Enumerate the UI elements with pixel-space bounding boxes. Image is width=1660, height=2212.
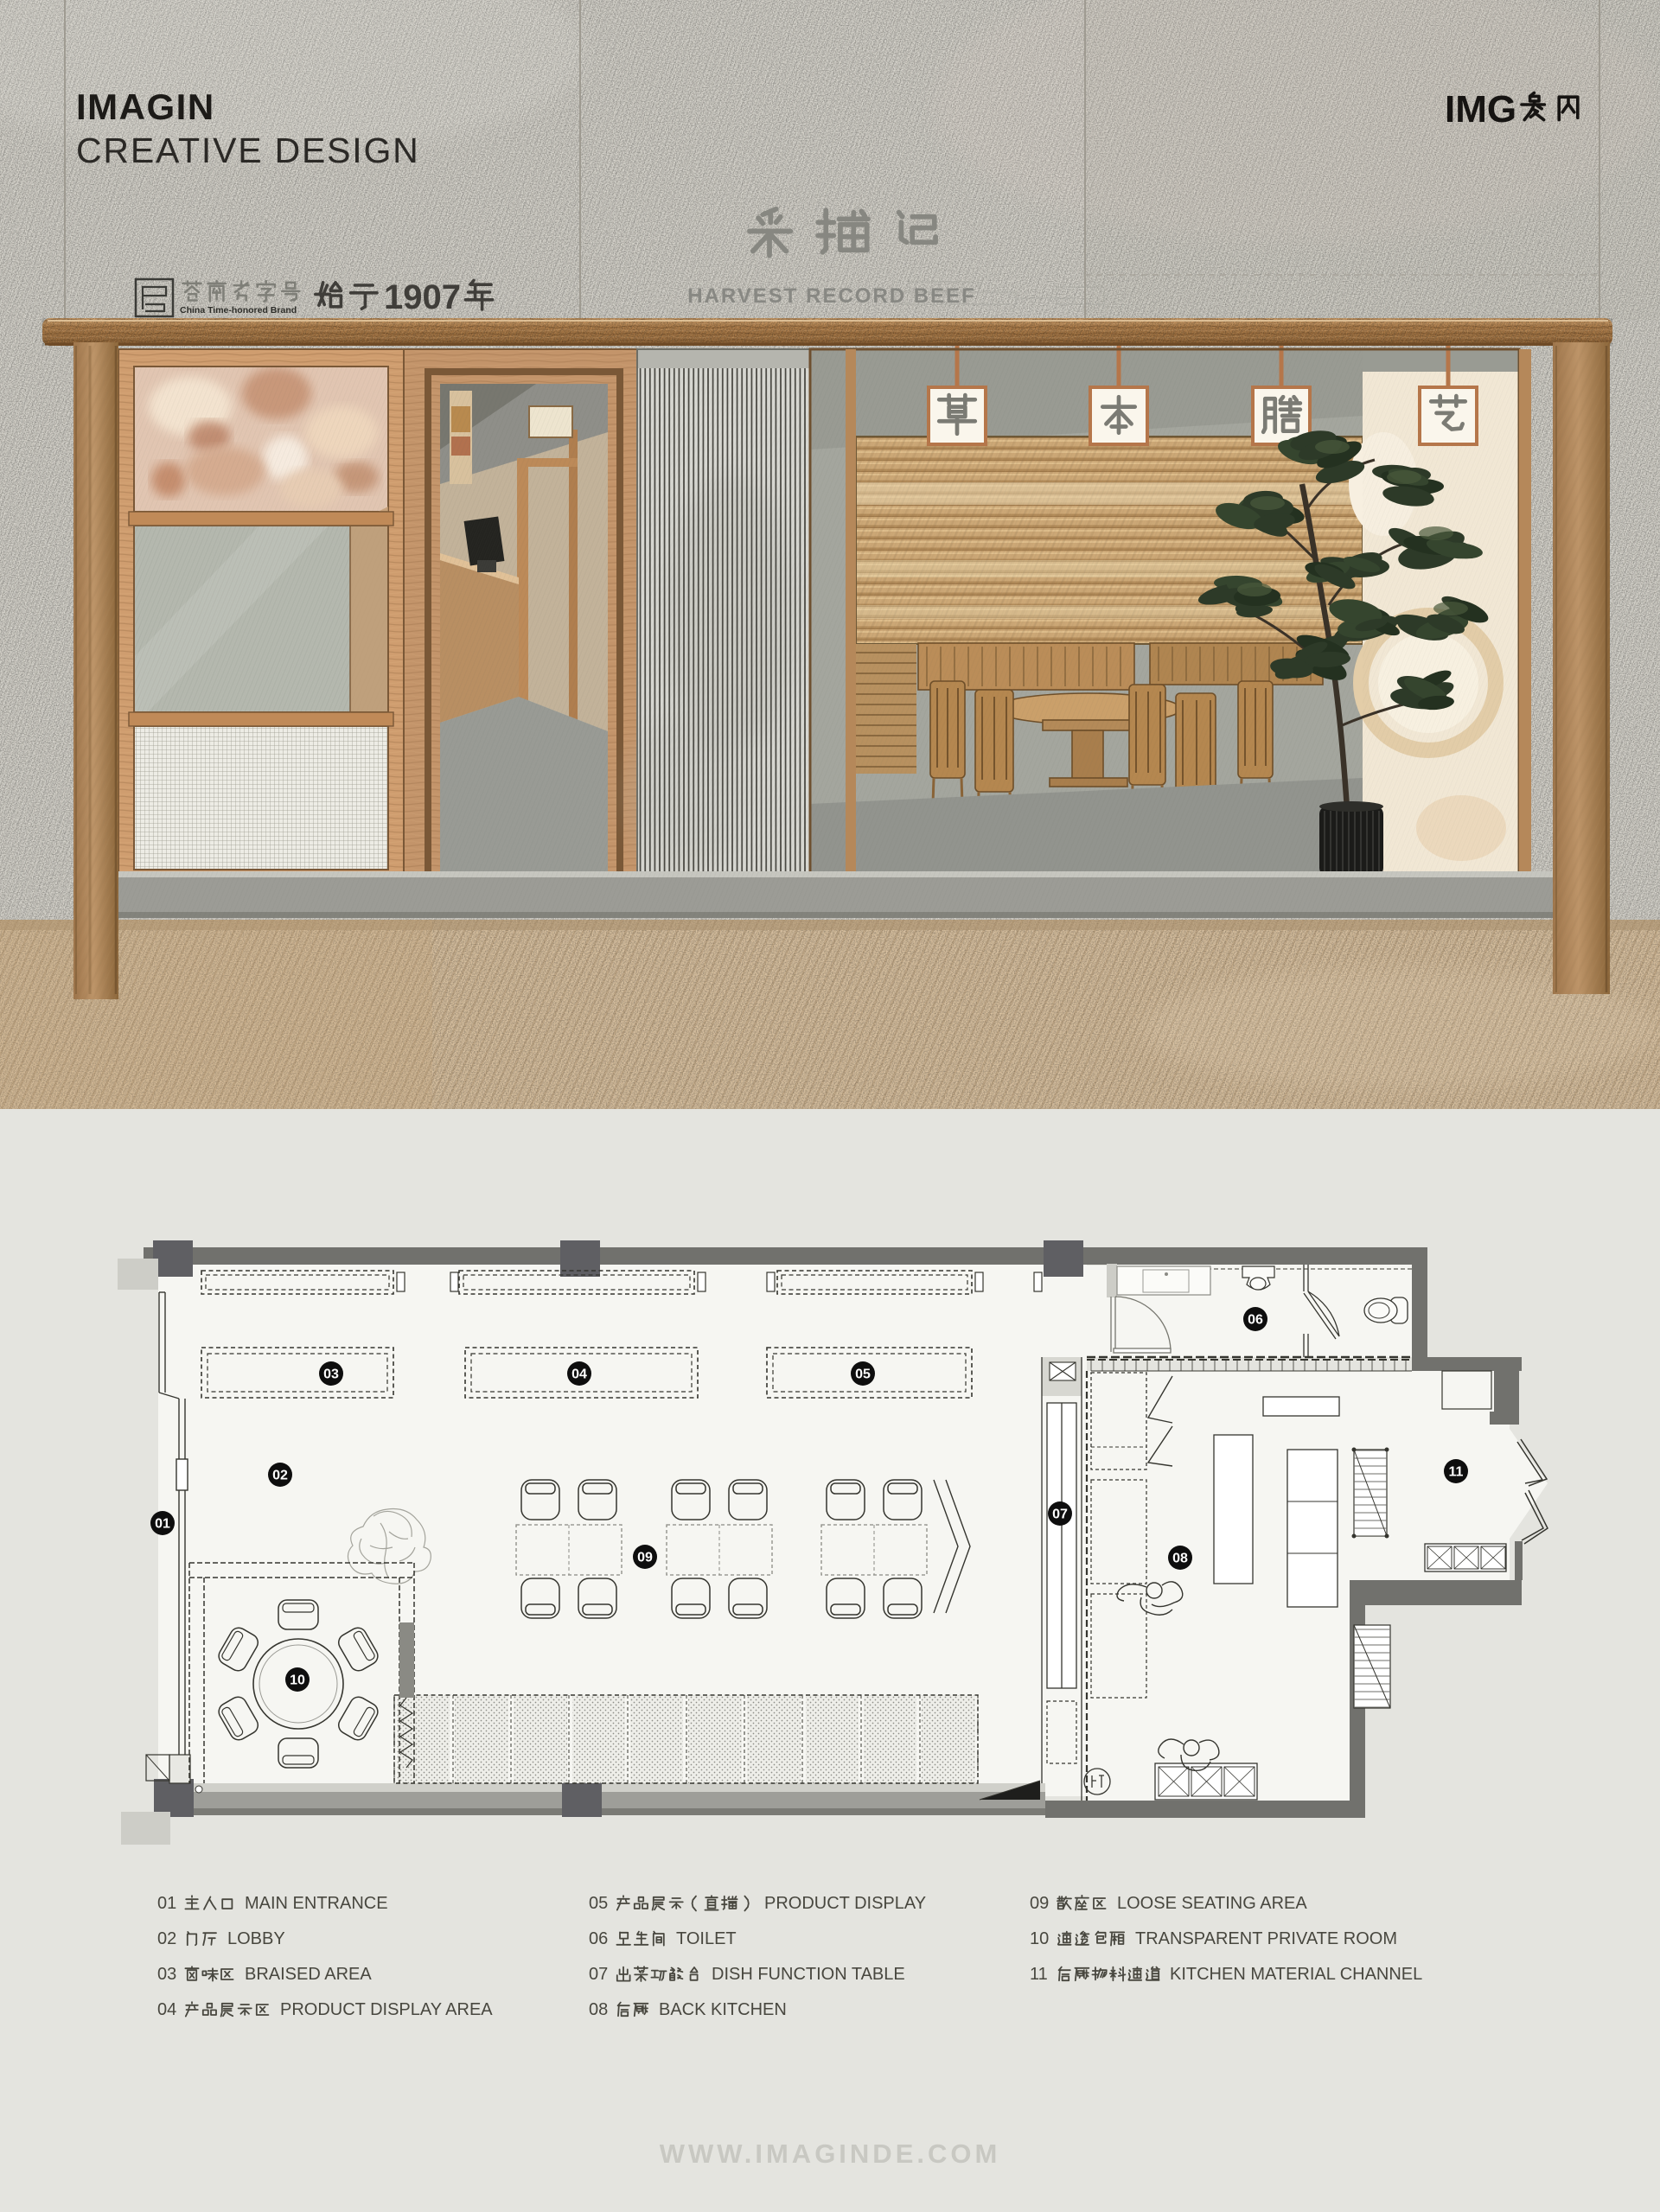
svg-text:01: 01 xyxy=(155,1517,170,1532)
svg-text:IMAGIN: IMAGIN xyxy=(76,86,215,127)
svg-text:06: 06 xyxy=(589,1929,608,1948)
svg-text:BACK KITCHEN: BACK KITCHEN xyxy=(659,2000,787,2019)
svg-text:WWW.IMAGINDE.COM: WWW.IMAGINDE.COM xyxy=(660,2139,1001,2169)
svg-text:CREATIVE DESIGN: CREATIVE DESIGN xyxy=(76,131,420,170)
svg-text:08: 08 xyxy=(1172,1552,1188,1566)
svg-text:06: 06 xyxy=(1248,1313,1263,1328)
svg-text:KITCHEN MATERIAL CHANNEL: KITCHEN MATERIAL CHANNEL xyxy=(1170,1965,1422,1984)
svg-text:03: 03 xyxy=(323,1367,339,1382)
svg-text:BRAISED AREA: BRAISED AREA xyxy=(245,1965,372,1984)
svg-text:07: 07 xyxy=(1052,1508,1068,1522)
svg-text:04: 04 xyxy=(157,2000,176,2019)
svg-text:DISH FUNCTION TABLE: DISH FUNCTION TABLE xyxy=(712,1965,905,1984)
svg-text:05: 05 xyxy=(589,1894,608,1913)
svg-text:LOOSE SEATING AREA: LOOSE SEATING AREA xyxy=(1117,1894,1307,1913)
svg-text:02: 02 xyxy=(157,1929,176,1948)
svg-text:HARVEST RECORD BEEF: HARVEST RECORD BEEF xyxy=(687,284,976,308)
svg-text:10: 10 xyxy=(290,1673,305,1688)
svg-text:09: 09 xyxy=(637,1551,653,1565)
svg-text:1907: 1907 xyxy=(384,278,461,316)
svg-text:11: 11 xyxy=(1030,1965,1048,1984)
svg-text:09: 09 xyxy=(1030,1894,1049,1913)
svg-text:02: 02 xyxy=(272,1469,288,1483)
svg-text:TRANSPARENT PRIVATE ROOM: TRANSPARENT PRIVATE ROOM xyxy=(1135,1929,1397,1948)
svg-text:LOBBY: LOBBY xyxy=(227,1929,285,1948)
svg-text:IMG: IMG xyxy=(1445,88,1516,131)
svg-text:TOILET: TOILET xyxy=(676,1929,737,1948)
svg-text:PRODUCT DISPLAY: PRODUCT DISPLAY xyxy=(764,1894,926,1913)
svg-text:03: 03 xyxy=(157,1965,176,1984)
svg-text:10: 10 xyxy=(1030,1929,1049,1948)
svg-text:04: 04 xyxy=(571,1367,587,1382)
svg-text:01: 01 xyxy=(157,1894,176,1913)
svg-text:China Time-honored Brand: China Time-honored Brand xyxy=(180,305,297,316)
svg-text:08: 08 xyxy=(589,2000,608,2019)
svg-text:PRODUCT DISPLAY AREA: PRODUCT DISPLAY AREA xyxy=(280,2000,493,2019)
svg-text:MAIN ENTRANCE: MAIN ENTRANCE xyxy=(245,1894,388,1913)
svg-text:11: 11 xyxy=(1449,1465,1464,1480)
svg-text:07: 07 xyxy=(589,1965,608,1984)
svg-text:05: 05 xyxy=(855,1367,871,1382)
